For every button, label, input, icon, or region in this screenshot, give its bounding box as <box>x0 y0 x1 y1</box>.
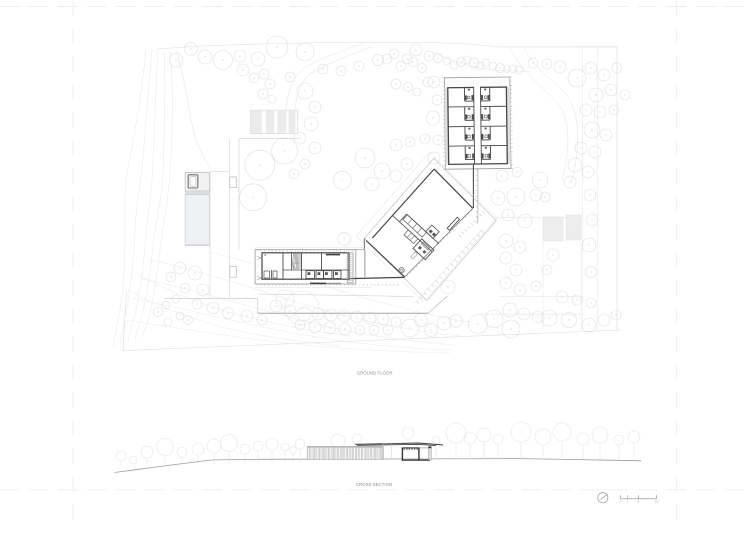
svg-text:GROUND FLOOR: GROUND FLOOR <box>357 370 393 375</box>
svg-text:10: 10 <box>655 500 659 504</box>
svg-text:CROSS SECTION: CROSS SECTION <box>356 482 392 487</box>
